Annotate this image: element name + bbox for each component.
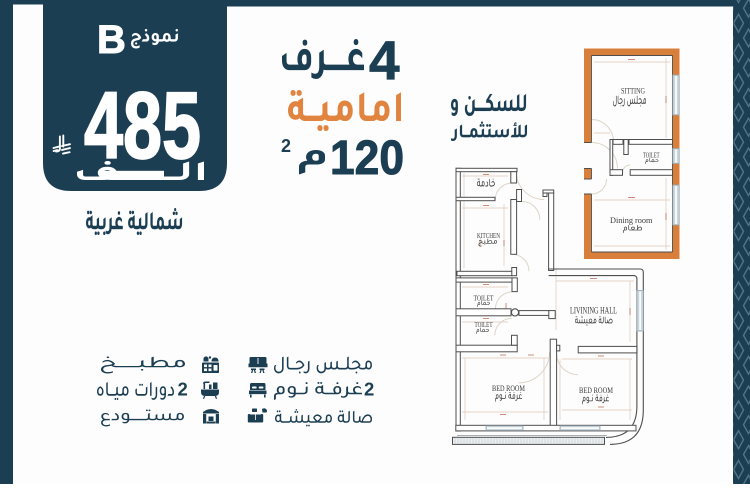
svg-text:TOILET: TOILET [643,152,660,160]
svg-text:120: 120 [330,132,404,185]
svg-text:SITTING: SITTING [621,85,645,95]
svg-text:2: 2 [364,379,374,400]
svg-text:TOILET: TOILET [474,293,494,302]
svg-text:BED ROOM: BED ROOM [492,383,525,393]
svg-text:BED ROOM: BED ROOM [579,385,613,395]
svg-text:B: B [97,18,126,62]
svg-text:TOILET: TOILET [475,320,493,329]
svg-text:4: 4 [369,29,400,91]
svg-text:2: 2 [178,379,188,400]
svg-text:Dining room: Dining room [610,216,653,225]
svg-text:485: 485 [84,73,201,179]
svg-text:2: 2 [281,136,291,156]
svg-text:LIVINING HALL: LIVINING HALL [570,306,617,316]
